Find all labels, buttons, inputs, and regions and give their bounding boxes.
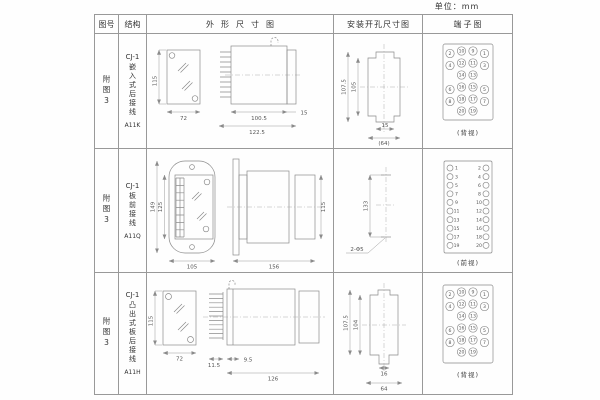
figure-no-a11h: 附图3 — [101, 317, 112, 350]
code-a11q: A11Q — [124, 233, 140, 240]
terminal-num-9: 9 — [472, 290, 475, 296]
terminal-num-18: 18 — [459, 338, 465, 344]
terminal-5 — [447, 182, 453, 188]
dim-height-a11k: 115 — [153, 75, 159, 86]
terminal-num-16: 16 — [459, 326, 465, 332]
terminal-num-5: 5 — [483, 328, 486, 334]
code-a11h: A11H — [124, 369, 140, 376]
dim-mount-v1-a11k: 107.5 — [342, 79, 348, 95]
terminal-num-4: 4 — [449, 304, 452, 310]
terminal-num-6: 6 — [449, 87, 452, 93]
terminal-num-2: 2 — [478, 166, 481, 172]
terminal-4 — [483, 174, 489, 180]
dim-width-a11h: 72 — [176, 357, 183, 363]
terminal-num-6: 6 — [478, 183, 481, 189]
side-view-a11h: 11.5 9.5 126 — [203, 280, 325, 382]
dim-depth1-a11k: 100.5 — [251, 116, 267, 122]
terminal-cell-a11q: (前视) 1234567891011121314151617181920 — [423, 149, 513, 273]
model-a11h: CJ-1 — [126, 291, 140, 299]
terminal-12 — [483, 208, 489, 214]
dim-depth-a11h: 126 — [268, 377, 279, 383]
outline-cell-a11k: 115 72 100.5 122.5 15 — [147, 34, 334, 149]
dim-holes-a11q: 2-Φ5 — [350, 247, 364, 253]
terminal-num-2: 2 — [449, 51, 452, 57]
terminal-17 — [447, 234, 453, 240]
dim-innerheight-a11q: 125 — [158, 201, 164, 212]
scanned-manual-page: 单位：mm 图号 结构 外形尺寸图 安装开孔尺寸图 端子图 附图3 CJ-1 嵌… — [0, 0, 600, 400]
mounting-drawing-a11k: 107.5 105 15 (64) — [334, 34, 422, 148]
terminal-num-20: 20 — [459, 350, 465, 356]
terminal-num-8: 8 — [449, 340, 452, 346]
model-a11q: CJ-1 — [126, 182, 140, 190]
terminal-num-6: 6 — [449, 328, 452, 334]
terminal-num-11: 11 — [470, 61, 476, 67]
terminal-16 — [483, 225, 489, 231]
terminal-20 — [483, 242, 489, 248]
dim-width-a11k: 72 — [180, 116, 187, 122]
terminal-14 — [483, 217, 489, 223]
figure-no-a11k: 附图3 — [101, 75, 112, 108]
code-a11k: A11K — [125, 122, 141, 129]
terminal-2 — [483, 165, 489, 171]
header-outline-label: 外形尺寸图 — [199, 19, 281, 30]
terminal-num-19: 19 — [454, 243, 460, 249]
terminal-num-2: 2 — [449, 292, 452, 298]
terminal-diagram-a11q: (前视) 1234567891011121314151617181920 — [423, 149, 512, 272]
dim-rearheight-a11q: 115 — [321, 201, 327, 212]
header-outline-dims: 外形尺寸图 — [147, 15, 334, 34]
terminal-num-17: 17 — [470, 338, 476, 344]
dim-pins-a11h: 11.5 — [208, 363, 221, 369]
terminal-3 — [447, 174, 453, 180]
terminal-num-3: 3 — [483, 63, 486, 69]
terminal-num-10: 10 — [476, 200, 482, 206]
dim-mount-h2-a11k: (64) — [378, 141, 389, 147]
structure-cell-a11h: CJ-1 凸出式板后接线 A11H — [119, 273, 147, 395]
terminal-19 — [447, 242, 453, 248]
terminal-num-5: 5 — [483, 87, 486, 93]
structure-a11h: 凸出式板后接线 — [128, 301, 138, 364]
dimension-spec-table: 图号 结构 外形尺寸图 安装开孔尺寸图 端子图 附图3 CJ-1 嵌入式后接线 … — [94, 14, 513, 395]
terminal-num-19: 19 — [470, 109, 476, 115]
terminal-8 — [483, 191, 489, 197]
unit-label: 单位：mm — [402, 1, 512, 12]
terminal-num-1: 1 — [483, 292, 486, 298]
terminal-13 — [447, 217, 453, 223]
dim-depth2-a11k: 122.5 — [249, 130, 265, 136]
mounting-drawing-a11h: 107.5 104 16 64 — [334, 273, 422, 394]
terminal-view-label-a11q: (前视) — [457, 258, 479, 267]
terminal-11 — [447, 208, 453, 214]
terminal-num-8: 8 — [478, 192, 481, 198]
outline-cell-a11q: 149 125 105 156 115 — [147, 149, 334, 273]
front-view-a11h: 115 72 — [149, 291, 197, 363]
terminal-num-7: 7 — [483, 340, 486, 346]
structure-cell-a11k: CJ-1 嵌入式后接线 A11K — [119, 34, 147, 149]
terminal-num-14: 14 — [459, 314, 465, 320]
front-view-a11k: 115 72 — [153, 50, 201, 122]
terminal-num-3: 3 — [483, 304, 486, 310]
terminal-num-18: 18 — [459, 97, 465, 103]
dim-height-a11h: 115 — [149, 315, 155, 326]
terminal-num-4: 4 — [449, 63, 452, 69]
terminal-num-5: 5 — [455, 183, 458, 189]
dim-outerheight-a11q: 149 — [151, 201, 157, 212]
dim-mount-v2-a11h: 104 — [354, 319, 360, 330]
terminal-7 — [447, 191, 453, 197]
dim-depth-a11q: 156 — [269, 265, 280, 271]
figure-no-cell-a11k: 附图3 — [95, 34, 119, 149]
terminal-num-4: 4 — [478, 174, 481, 180]
dim-flange-a11h: 9.5 — [244, 358, 253, 364]
terminal-num-16: 16 — [476, 226, 482, 232]
terminal-num-15: 15 — [470, 85, 476, 91]
figure-no-cell-a11q: 附图3 — [95, 149, 119, 273]
terminal-num-19: 19 — [470, 350, 476, 356]
terminal-num-17: 17 — [454, 235, 460, 241]
terminal-num-8: 8 — [449, 99, 452, 105]
side-view-a11k: 100.5 122.5 15 — [219, 38, 308, 137]
terminal-num-13: 13 — [454, 217, 460, 223]
structure-a11k: 嵌入式后接线 — [128, 63, 138, 117]
mounting-cell-a11q: 133 2-Φ5 — [334, 149, 423, 273]
dim-mount-v2-a11k: 105 — [352, 81, 358, 92]
terminal-num-10: 10 — [459, 290, 465, 296]
terminal-num-9: 9 — [455, 200, 458, 206]
terminal-num-12: 12 — [476, 209, 482, 215]
structure-a11q: 板前接线 — [128, 192, 138, 228]
dim-mount-h1-a11k: 15 — [382, 123, 389, 129]
terminal-num-15: 15 — [470, 326, 476, 332]
terminal-num-12: 12 — [459, 61, 465, 67]
mounting-drawing-a11q: 133 2-Φ5 — [334, 149, 422, 272]
dim-mount-v-a11q: 133 — [364, 200, 370, 211]
figure-no-cell-a11h: 附图3 — [95, 273, 119, 395]
terminal-num-7: 7 — [455, 192, 458, 198]
outline-cell-a11h: 115 72 11.5 9.5 126 — [147, 273, 334, 395]
mounting-cell-a11h: 107.5 104 16 64 — [334, 273, 423, 395]
outline-drawing-a11k: 115 72 100.5 122.5 15 — [147, 34, 333, 148]
terminal-num-16: 16 — [459, 85, 465, 91]
terminal-num-10: 10 — [459, 49, 465, 55]
header-figure-no-label: 图号 — [99, 19, 115, 30]
header-structure: 结构 — [119, 15, 147, 34]
terminal-num-20: 20 — [459, 109, 465, 115]
terminal-num-13: 13 — [470, 73, 476, 79]
outline-drawing-a11h: 115 72 11.5 9.5 126 — [147, 273, 333, 394]
header-figure-no: 图号 — [95, 15, 119, 34]
terminal-num-15: 15 — [454, 226, 460, 232]
terminal-num-14: 14 — [459, 73, 465, 79]
terminal-9 — [447, 199, 453, 205]
header-mounting-label: 安装开孔尺寸图 — [346, 19, 410, 30]
terminal-num-1: 1 — [483, 51, 486, 57]
model-a11k: CJ-1 — [126, 53, 140, 61]
header-structure-label: 结构 — [125, 19, 141, 30]
terminal-num-14: 14 — [476, 217, 482, 223]
terminal-num-13: 13 — [470, 314, 476, 320]
header-mounting-dims: 安装开孔尺寸图 — [334, 15, 423, 34]
front-view-a11q: 149 125 105 — [151, 161, 216, 271]
terminal-view-label-a11h: (背视) — [457, 370, 479, 379]
header-terminal-diagram: 端子图 — [423, 15, 513, 34]
terminal-10 — [483, 199, 489, 205]
dim-mount-h1-a11h: 16 — [381, 372, 388, 378]
terminal-num-3: 3 — [455, 174, 458, 180]
terminal-num-11: 11 — [470, 302, 476, 308]
dim-mount-v1-a11h: 107.5 — [344, 315, 350, 331]
terminal-6 — [483, 182, 489, 188]
terminal-num-12: 12 — [459, 302, 465, 308]
terminal-num-9: 9 — [472, 49, 475, 55]
terminal-num-11: 11 — [454, 209, 460, 215]
figure-no-a11q: 附图3 — [101, 194, 112, 227]
terminal-diagram-a11k: (背视) 2109141211314136161558181772019 — [423, 34, 512, 148]
terminal-view-label-a11k: (背视) — [457, 128, 479, 137]
terminal-15 — [447, 225, 453, 231]
side-view-a11q: 156 115 — [227, 159, 327, 271]
dim-flange-a11k: 15 — [301, 111, 308, 117]
terminal-num-17: 17 — [470, 97, 476, 103]
terminal-diagram-a11h: (背视) 2109141211314136161558181772019 — [423, 273, 512, 394]
terminal-num-20: 20 — [476, 243, 482, 249]
terminal-1 — [447, 165, 453, 171]
mounting-cell-a11k: 107.5 105 15 (64) — [334, 34, 423, 149]
terminal-num-1: 1 — [455, 166, 458, 172]
terminal-18 — [483, 234, 489, 240]
dim-mount-h2-a11h: 64 — [381, 387, 388, 393]
header-terminal-label: 端子图 — [452, 19, 484, 30]
dim-width-a11q: 105 — [187, 265, 198, 271]
terminal-num-7: 7 — [483, 99, 486, 105]
outline-drawing-a11q: 149 125 105 156 115 — [147, 149, 333, 272]
terminal-cell-a11h: (背视) 2109141211314136161558181772019 — [423, 273, 513, 395]
structure-cell-a11q: CJ-1 板前接线 A11Q — [119, 149, 147, 273]
terminal-num-18: 18 — [476, 235, 482, 241]
terminal-cell-a11k: (背视) 2109141211314136161558181772019 — [423, 34, 513, 149]
